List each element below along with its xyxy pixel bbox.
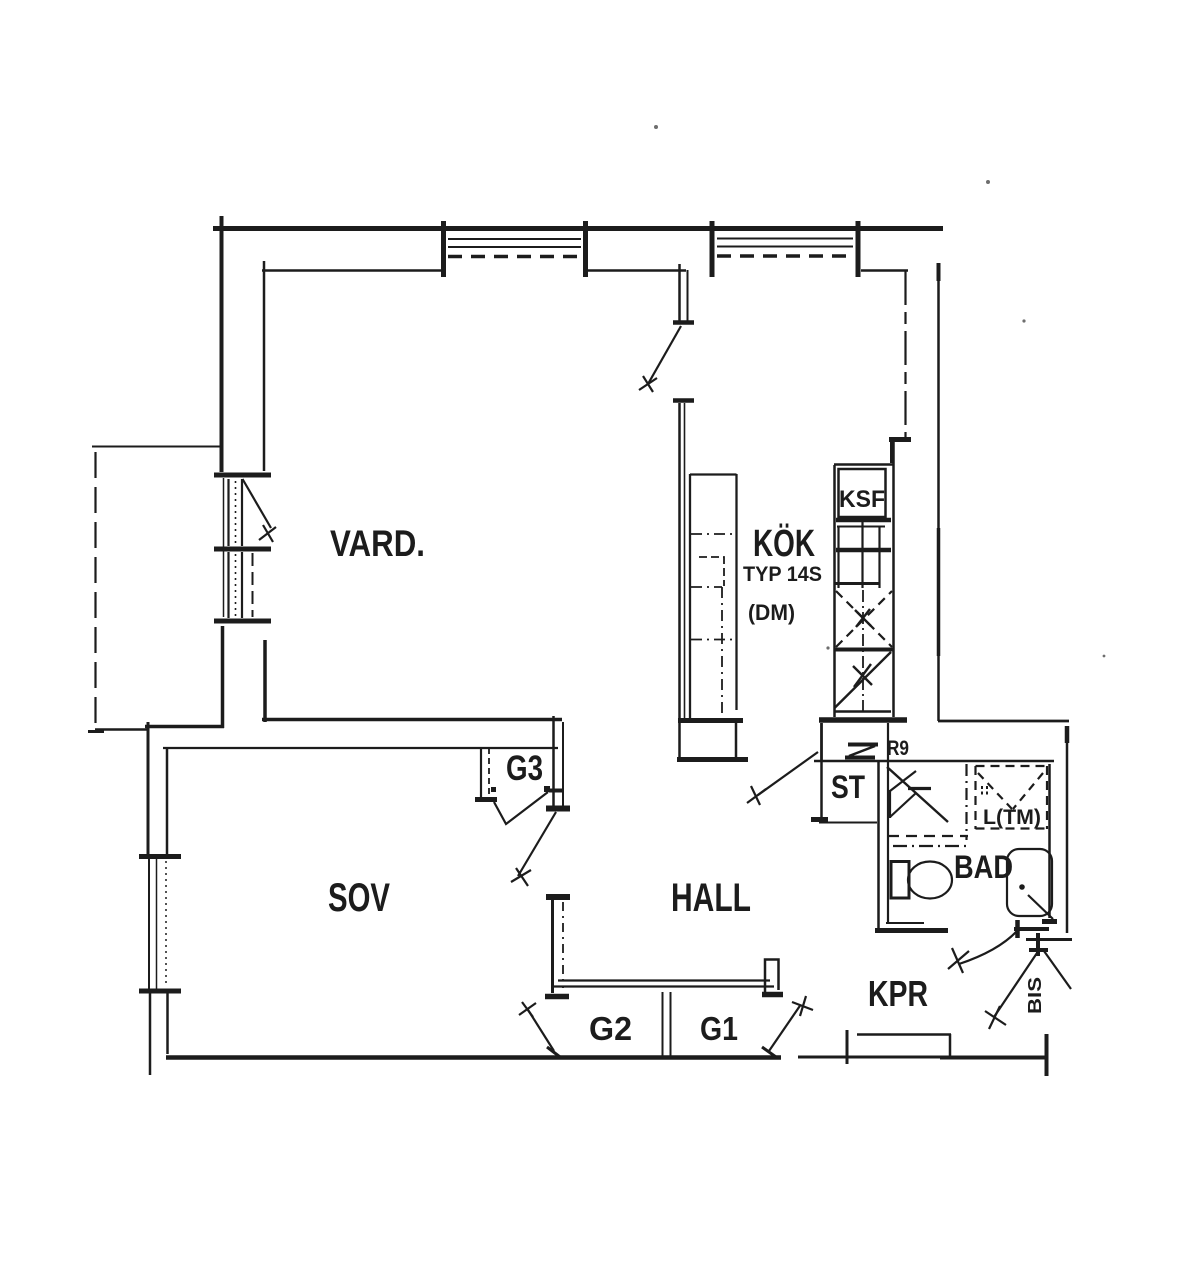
svg-text:TYP 14S: TYP 14S	[743, 563, 822, 586]
svg-text:KÖK: KÖK	[753, 522, 815, 565]
svg-text:HALL: HALL	[671, 876, 751, 920]
svg-text:G2: G2	[589, 1010, 632, 1047]
svg-text:SOV: SOV	[328, 876, 390, 920]
svg-text:G1: G1	[700, 1010, 738, 1047]
svg-text:BAD: BAD	[954, 849, 1013, 885]
svg-text:ST: ST	[831, 769, 865, 805]
svg-text:BIS: BIS	[1025, 977, 1045, 1014]
svg-text:(DM): (DM)	[748, 600, 795, 625]
svg-text:KSF: KSF	[839, 486, 885, 513]
svg-text:VARD.: VARD.	[330, 523, 425, 564]
svg-text:R9: R9	[887, 737, 909, 760]
svg-text:G3: G3	[506, 749, 543, 788]
svg-text:L(TM): L(TM)	[983, 806, 1041, 829]
svg-text:KPR: KPR	[868, 973, 928, 1014]
